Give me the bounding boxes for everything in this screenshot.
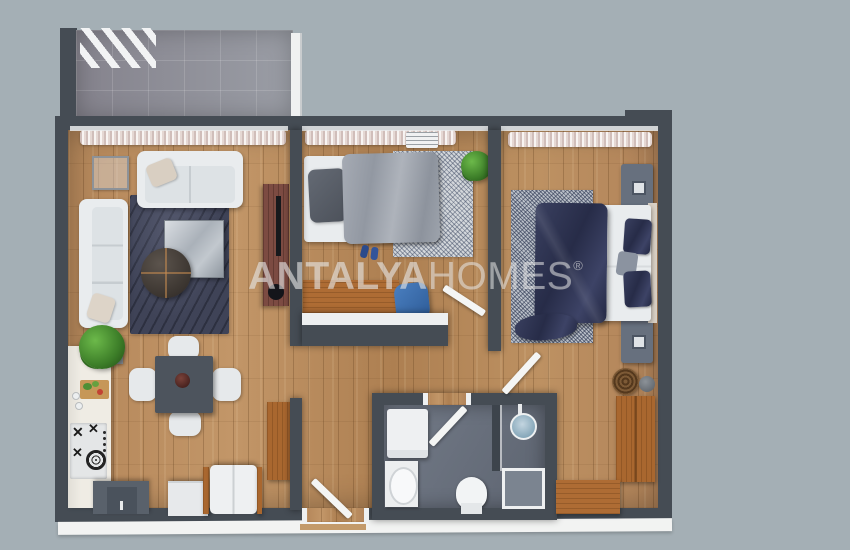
hob-knob: [103, 437, 106, 440]
burner-cross: ✕: [72, 424, 84, 441]
wall-cap: [501, 126, 658, 131]
wall-cap: [302, 126, 488, 131]
wall-bedroom1-bedroom2: [488, 130, 501, 351]
burner-cross: ✕: [72, 445, 83, 461]
balcony-left-wall: [60, 28, 77, 124]
cabinet-handle: [120, 501, 123, 510]
washing-machine: [387, 409, 428, 458]
burner-coil: [86, 450, 106, 470]
basket: [639, 376, 655, 392]
sofa-two-seat: [137, 151, 243, 208]
shower-glass: [500, 405, 502, 471]
bed-pillow: [623, 218, 652, 255]
door-jamb: [466, 393, 471, 405]
cabinet-wood-side: [203, 467, 209, 514]
kitchen-cabinet-dark: [93, 481, 149, 514]
bedroom2-wardrobe: [616, 396, 655, 482]
entrance-threshold: [300, 524, 366, 530]
nightstand-handle: [632, 335, 646, 349]
washbasin-vanity: [385, 461, 418, 507]
balcony-railing: [291, 33, 302, 120]
watermark-trademark: ®: [573, 258, 583, 273]
hob-knob: [103, 443, 106, 446]
shower-partition: [492, 405, 500, 471]
shoe-cabinet: [267, 402, 291, 480]
dining-chair: [212, 368, 241, 401]
egg: [75, 402, 83, 410]
basket: [612, 368, 639, 395]
wall-living-bedroom1: [290, 130, 302, 346]
greens: [83, 383, 92, 390]
table-vase: [175, 373, 190, 388]
single-bed-duvet: [342, 152, 440, 244]
hob: ✕ ✕ ✕: [70, 423, 107, 479]
bedroom2-curtains: [508, 132, 652, 147]
nightstand: [621, 317, 653, 363]
watermark-brand: ANTALYA: [248, 255, 428, 298]
door-jamb: [364, 508, 369, 522]
floor-plan-scene: ✕ ✕ ✕: [0, 0, 850, 550]
dining-chair: [169, 411, 201, 436]
living-curtains: [80, 130, 286, 145]
greens: [92, 381, 99, 387]
round-side-table: [141, 248, 191, 298]
tv-screen: [276, 196, 281, 256]
tomato: [97, 389, 103, 395]
fridge: [210, 465, 257, 514]
bedroom2-bench: [556, 480, 620, 514]
unit-wall-notch: [625, 110, 672, 122]
wall-cap: [302, 313, 448, 325]
door-jamb: [302, 508, 307, 522]
single-bed-pillow: [308, 168, 348, 223]
burner-cross: ✕: [88, 421, 99, 437]
side-table: [92, 156, 129, 190]
cutting-board: [80, 380, 109, 399]
kitchen-cabinet-white: [168, 481, 208, 516]
wall-living-hall: [290, 398, 302, 510]
hob-knob: [103, 431, 106, 434]
cabinet-wood-side: [257, 467, 262, 514]
shower-tray: [502, 468, 545, 509]
brand-watermark: ANTALYAHOMES®: [248, 258, 583, 296]
nightstand: [621, 164, 653, 208]
door-jamb: [423, 393, 428, 405]
shower-head: [510, 413, 537, 440]
living-plant: [79, 325, 125, 369]
hob-knob: [103, 449, 106, 452]
egg: [72, 392, 80, 400]
dining-chair: [129, 368, 157, 401]
wall-bedroom1-bottom: [302, 313, 448, 346]
dining-table: [155, 356, 213, 413]
sofa-three-seat: [79, 199, 128, 328]
balcony-slats: [80, 28, 156, 68]
nightstand-handle: [632, 181, 646, 195]
toilet-base: [461, 503, 482, 514]
wall-cap: [70, 126, 288, 131]
bathroom-door-opening: [428, 393, 466, 405]
watermark-brand-suffix: HOMES: [428, 255, 574, 298]
entrance-opening: [306, 508, 364, 522]
ac-vent: [406, 132, 438, 148]
bed-pillow: [623, 270, 652, 307]
washbasin: [389, 467, 418, 505]
